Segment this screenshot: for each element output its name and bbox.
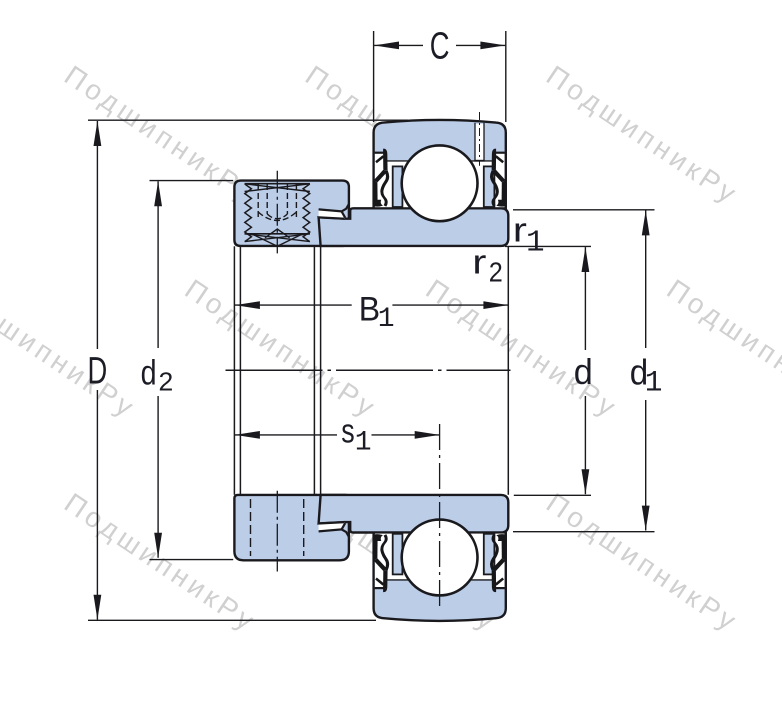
svg-text:1: 1 (526, 225, 545, 260)
svg-text:1: 1 (378, 304, 395, 335)
svg-text:s: s (341, 412, 354, 450)
svg-text:d: d (574, 352, 593, 392)
svg-text:1: 1 (645, 366, 663, 400)
svg-text:r: r (472, 244, 486, 282)
svg-text:1: 1 (355, 427, 372, 458)
svg-text:d: d (141, 353, 157, 392)
svg-text:2: 2 (159, 367, 174, 397)
svg-text:2: 2 (489, 256, 503, 288)
svg-text:r: r (513, 212, 527, 250)
svg-text:C: C (430, 25, 450, 67)
svg-text:D: D (88, 350, 108, 392)
